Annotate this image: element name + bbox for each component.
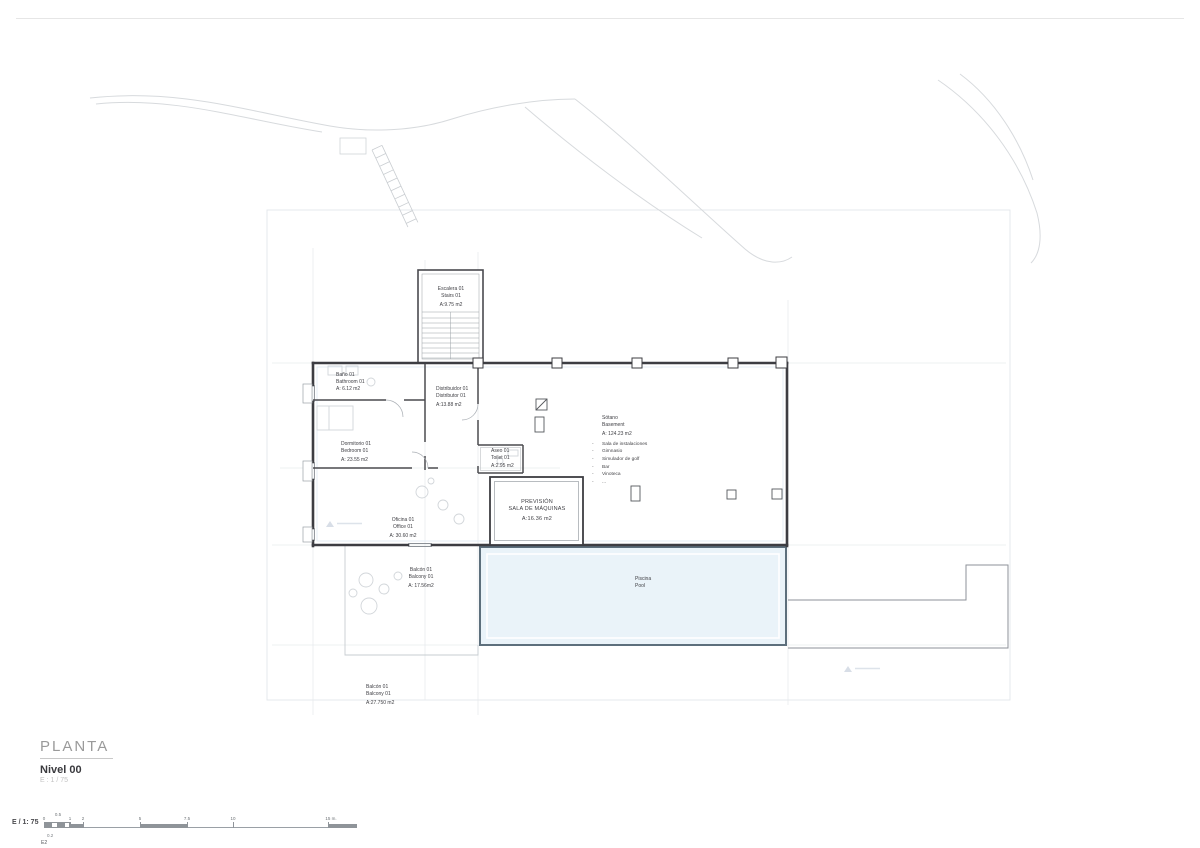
room-name-es: Distribuidor 01 xyxy=(436,386,468,393)
terrace-outline xyxy=(788,565,1008,648)
staircase-block xyxy=(418,270,483,363)
room-area: A:13.88 m2 xyxy=(436,402,468,409)
label-office: Oficina 01 Office 01 A: 30.60 m2 xyxy=(390,517,417,540)
room-area: A:9.75 m2 xyxy=(438,302,464,309)
room-name-en: Toilet 01 xyxy=(491,455,514,462)
window-sills xyxy=(303,384,312,542)
label-toilet: Aseo 01 Toilet 01 A:2.95 m2 xyxy=(491,448,514,470)
room-area: A: 23.55 m2 xyxy=(341,457,371,464)
sheet-level: Nivel 00 xyxy=(40,764,113,776)
label-bedroom: Dormitorio 01 Bedroom 01 A: 23.55 m2 xyxy=(341,441,371,464)
feature-item: Bar xyxy=(602,465,647,471)
label-machine-room: PREVISIÓN SALA DE MÁQUINAS A:16.36 m2 xyxy=(509,499,566,523)
feature-item: Gimnasio xyxy=(602,449,647,455)
room-name-en: Distributor 01 xyxy=(436,393,468,400)
floor-plan-drawing xyxy=(0,0,1200,848)
feature-item: Simulador de golf xyxy=(602,457,647,463)
room-name-en: Bathroom 01 xyxy=(336,379,365,386)
plan-sheet: Escalera 01 Stairs 01 A:9.75 m2 Baño 01 … xyxy=(0,0,1200,848)
room-name-en: Balcony 01 xyxy=(408,574,434,581)
label-balcony: Balcón 01 Balcony 01 A: 17.56m2 xyxy=(408,567,434,590)
sheet-title: PLANTA xyxy=(40,738,113,759)
room-name-en: Stairs 01 xyxy=(438,293,464,300)
feature-item: Vinoteca xyxy=(602,472,647,478)
room-name-es: Piscina xyxy=(635,576,651,583)
sheet-scale-note: E : 1 / 75 xyxy=(40,777,113,784)
label-distributor: Distribuidor 01 Distributor 01 A:13.88 m… xyxy=(436,386,468,409)
room-name-line2: SALA DE MÁQUINAS xyxy=(509,506,566,513)
room-name-es: Balcón 01 xyxy=(408,567,434,574)
room-area: A:27.750 m2 xyxy=(366,700,394,707)
room-area: A: 30.60 m2 xyxy=(390,533,417,540)
room-area: A:2.95 m2 xyxy=(491,463,514,470)
balcony-outline xyxy=(345,546,478,655)
title-block: PLANTA Nivel 00 E : 1 / 75 xyxy=(40,738,113,784)
room-area: A:16.36 m2 xyxy=(509,516,566,523)
room-area: A: 6.12 m2 xyxy=(336,386,365,393)
room-name-es: Oficina 01 xyxy=(390,517,417,524)
room-name-en: Bedroom 01 xyxy=(341,448,371,455)
label-stairs: Escalera 01 Stairs 01 A:9.75 m2 xyxy=(438,286,464,309)
room-area: A: 124.23 m2 xyxy=(602,431,647,438)
feature-item: Sala de instalaciones xyxy=(602,442,647,448)
label-balcony-lower: Balcón 01 Balcony 01 A:27.750 m2 xyxy=(366,684,394,707)
room-name-en: Basement xyxy=(602,422,647,429)
room-area: A: 17.56m2 xyxy=(408,583,434,590)
room-name-en: Office 01 xyxy=(390,524,417,531)
room-name-en: Pool xyxy=(635,583,651,590)
feature-item: ... xyxy=(602,480,647,486)
room-name-es: Dormitorio 01 xyxy=(341,441,371,448)
basement-feature-list: Sala de instalaciones Gimnasio Simulador… xyxy=(602,442,647,487)
label-basement: Sótano Basement A: 124.23 m2 Sala de ins… xyxy=(602,415,647,488)
pool xyxy=(480,547,786,645)
room-name-en: Balcony 01 xyxy=(366,691,394,698)
label-pool: Piscina Pool xyxy=(635,576,651,589)
room-name-es: Escalera 01 xyxy=(438,286,464,293)
site-stair xyxy=(340,138,418,227)
label-bathroom: Baño 01 Bathroom 01 A: 6.12 m2 xyxy=(336,372,365,393)
contour-lines xyxy=(90,74,1040,263)
door-arcs xyxy=(386,400,478,468)
